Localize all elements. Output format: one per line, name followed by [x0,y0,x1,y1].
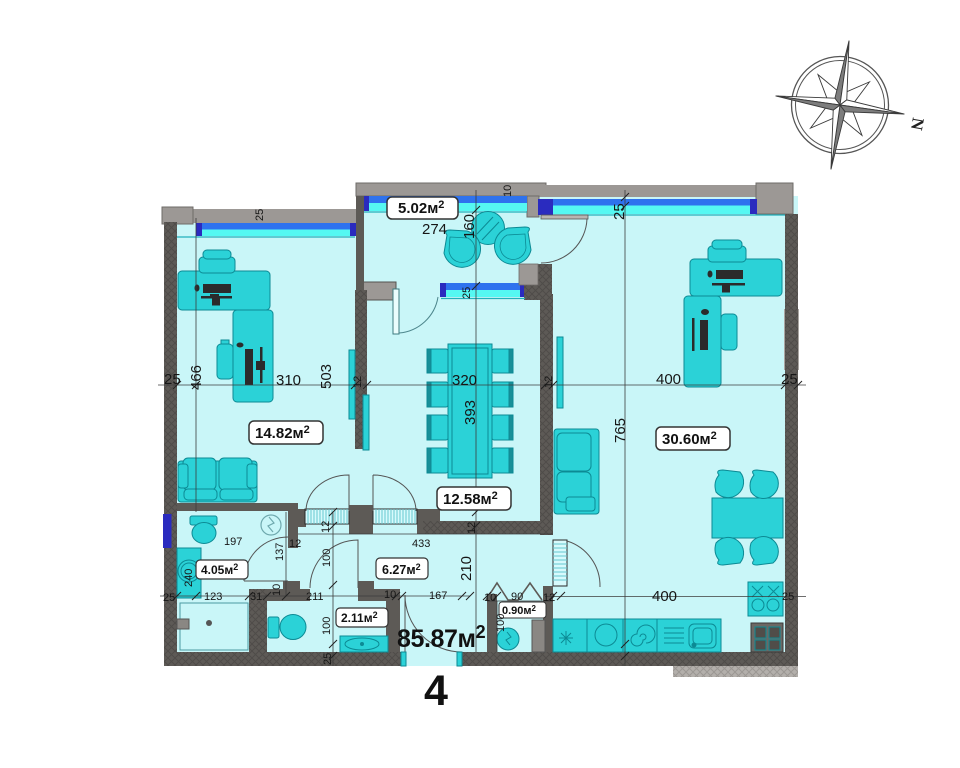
svg-text:25: 25 [322,653,334,665]
svg-text:6.27м2: 6.27м2 [382,562,421,577]
svg-text:5.02м2: 5.02м2 [398,199,444,217]
svg-text:100: 100 [495,614,507,632]
svg-text:12: 12 [466,522,478,534]
svg-text:25: 25 [163,592,175,604]
svg-text:25: 25 [164,371,181,388]
svg-text:400: 400 [656,371,681,388]
svg-text:2.11м2: 2.11м2 [341,610,378,625]
svg-text:25: 25 [781,371,798,388]
svg-text:30.60м2: 30.60м2 [662,430,717,448]
svg-text:210: 210 [458,556,475,581]
svg-text:12: 12 [543,376,555,388]
svg-text:12: 12 [352,376,364,388]
svg-text:25: 25 [611,203,628,220]
svg-text:466: 466 [188,365,205,390]
svg-text:25: 25 [254,209,266,221]
svg-text:167: 167 [429,590,447,602]
svg-text:10: 10 [271,584,283,596]
svg-text:85.87м2: 85.87м2 [397,622,486,653]
svg-text:12: 12 [320,521,332,533]
svg-text:25: 25 [782,591,794,603]
svg-text:90: 90 [511,591,523,603]
svg-text:240: 240 [183,569,195,587]
svg-text:12: 12 [289,538,301,550]
svg-text:274: 274 [422,221,447,238]
svg-text:400: 400 [652,588,677,605]
svg-text:10: 10 [384,589,396,601]
svg-text:4.05м2: 4.05м2 [201,562,238,577]
svg-text:123: 123 [204,591,222,603]
svg-text:14.82м2: 14.82м2 [255,424,310,442]
svg-text:137: 137 [274,543,286,561]
svg-text:197: 197 [224,536,242,548]
svg-text:10: 10 [484,592,496,604]
svg-text:25: 25 [461,287,473,299]
svg-text:765: 765 [612,418,629,443]
svg-text:12.58м2: 12.58м2 [443,490,498,508]
svg-text:100: 100 [321,617,333,635]
svg-text:320: 320 [452,372,477,389]
svg-text:433: 433 [412,538,430,550]
svg-text:100: 100 [321,549,333,567]
svg-text:12: 12 [543,592,555,604]
svg-text:503: 503 [318,364,335,389]
svg-text:0.90м2: 0.90м2 [502,604,537,617]
svg-text:31: 31 [250,591,262,603]
svg-text:10: 10 [502,185,514,197]
svg-text:211: 211 [306,591,324,603]
svg-text:310: 310 [276,372,301,389]
svg-text:4: 4 [424,667,448,715]
svg-text:393: 393 [462,400,479,425]
svg-text:160: 160 [461,214,478,239]
